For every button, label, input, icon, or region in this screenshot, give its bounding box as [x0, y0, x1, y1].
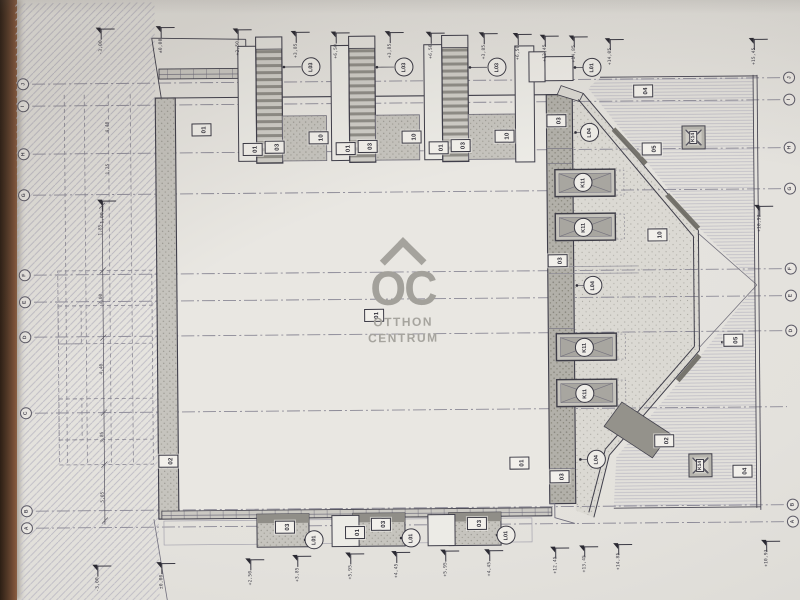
- elevation-value: +13,45: [582, 555, 587, 573]
- ref-circle-label: L01: [305, 530, 324, 549]
- grid-axis-bubble: J: [17, 78, 29, 90]
- grid-axis-bubble-text: H: [21, 152, 27, 156]
- flag-arm: [396, 552, 410, 553]
- ref-box-label-text: 05: [733, 336, 739, 343]
- grid-axis-bubble: H: [784, 142, 796, 154]
- ref-box-label: 10: [647, 228, 667, 241]
- ref-circle-label-text: L01: [311, 535, 317, 545]
- grid-axis-bubble-text: B: [24, 509, 30, 513]
- flag-pole: [445, 551, 446, 562]
- grid-axis-bubble: F: [19, 269, 31, 281]
- elevation-value: +2,50: [236, 41, 241, 56]
- elevation-value: +5,95: [443, 562, 448, 577]
- grid-axis-bubble-text: I: [786, 99, 792, 100]
- grid-axis-bubble: F: [785, 263, 797, 275]
- grid-axis-bubble-text: C: [23, 411, 29, 415]
- ref-circle-label-text: K11: [582, 388, 588, 398]
- grid-axis-bubble-text: D: [22, 335, 28, 339]
- grid-axis-bubble: I: [17, 100, 29, 112]
- photographed-blueprint: JIHGFEDCBAJIHGFEDBA010101010101010303030…: [0, 0, 800, 600]
- flag-pole: [296, 32, 297, 43]
- grid-axis-bubble-text: E: [788, 294, 794, 297]
- ref-circle-label-text: L01: [589, 63, 595, 73]
- grid-axis-bubble-text: G: [21, 193, 27, 197]
- flag-pole: [431, 33, 432, 44]
- elevation-value: +3,85: [482, 45, 487, 60]
- ref-box-label-text: 01: [439, 144, 445, 151]
- elevation-value: +3,85: [294, 43, 299, 58]
- grid-axis-bubble: G: [18, 189, 30, 201]
- ref-box-label: 03: [548, 254, 568, 267]
- ref-circle-label: L04: [580, 123, 599, 142]
- ref-circle-label-text: L03: [494, 62, 500, 72]
- dimension-text: 5,05: [101, 492, 106, 503]
- flag-pole: [518, 34, 519, 45]
- elevation-value: +12,45: [553, 556, 558, 574]
- flag-arm: [102, 200, 116, 201]
- flag-arm: [618, 544, 632, 545]
- ref-circle-label-text: L03: [401, 62, 407, 72]
- roof-plan-drawing: JIHGFEDCBAJIHGFEDBA010101010101010303030…: [0, 0, 800, 600]
- grid-axis-bubble: I: [783, 94, 795, 106]
- ref-circle-label-text: L04: [593, 455, 599, 465]
- ref-box-label: 05: [642, 142, 662, 155]
- ref-box-label: 03: [358, 140, 378, 153]
- dimension-text-text: 1,85: [98, 225, 103, 236]
- flag-arm: [610, 39, 624, 40]
- dimension-text-text: 3,00: [99, 294, 104, 305]
- dimension-text: 3,00: [99, 294, 104, 305]
- flag-arm: [431, 33, 445, 34]
- flag-pole: [484, 33, 485, 44]
- ref-circle-label: L03: [394, 57, 413, 76]
- elevation-value: -3,00: [95, 577, 100, 592]
- dimension-text: 4,40: [100, 364, 105, 375]
- ref-circle-label: L04: [583, 276, 602, 295]
- dimension-text-text: 4,40: [105, 122, 110, 133]
- grid-axis-bubble-text: J: [20, 83, 26, 86]
- flag-arm: [555, 548, 569, 549]
- flag-arm: [584, 546, 598, 547]
- dimension-text-text: 1,25: [106, 164, 111, 175]
- flag-arm: [759, 206, 773, 207]
- ref-box-label: 01: [243, 143, 263, 156]
- ref-box-label-text: 10: [412, 133, 418, 140]
- grid-axis-bubble: D: [785, 325, 797, 337]
- dimension-text-text: 4,40: [100, 364, 105, 375]
- ref-box-label: 03: [451, 139, 471, 152]
- elevation-value: -3,00: [99, 40, 104, 55]
- dimension-text-text: 5,05: [101, 492, 106, 503]
- grid-axis-bubble: A: [787, 516, 799, 528]
- elevation-value: +4,45: [394, 563, 399, 578]
- flag-pole: [102, 201, 103, 212]
- ref-box-label-text: 03: [556, 117, 562, 124]
- ref-box-label-text: 03: [275, 143, 281, 150]
- ref-box-label: 03: [275, 520, 295, 533]
- ref-box-label-text: 03: [477, 520, 483, 527]
- ref-box-label-text: 05: [652, 145, 658, 152]
- flag-arm: [238, 29, 252, 30]
- ref-box-label-text: 03: [285, 523, 291, 530]
- flag-pole: [396, 552, 397, 563]
- flag-pole: [336, 33, 337, 44]
- flag-arm: [754, 39, 768, 40]
- ref-box-label-text: 03: [560, 473, 566, 480]
- ref-box-label-text: 01: [355, 529, 361, 536]
- grid-axis-bubble-text: F: [22, 274, 28, 277]
- ref-circle-label: L03: [487, 58, 506, 77]
- dimension-text: 4,40: [105, 122, 110, 133]
- flag-arm: [518, 34, 532, 35]
- flag-arm: [297, 556, 311, 557]
- grid-axis-bubble: C: [20, 407, 32, 419]
- grid-axis-bubble-text: A: [24, 526, 30, 530]
- elevation-value: +5,95: [348, 565, 353, 580]
- grid-axis-bubble: B: [21, 505, 33, 517]
- ref-box-label: 03: [371, 517, 391, 530]
- roof-window-label-text: K14: [696, 459, 704, 472]
- flag-arm: [101, 28, 115, 29]
- flag-arm: [250, 559, 264, 560]
- ref-box-label: 03: [549, 470, 569, 483]
- flag-pole: [161, 27, 162, 38]
- grid-axis-bubble: H: [18, 148, 30, 160]
- ref-circle-label-text: L01: [503, 530, 509, 540]
- ref-box-label-text: 02: [168, 457, 174, 464]
- flag-arm: [390, 32, 404, 33]
- ref-box-label-text: 01: [346, 145, 352, 152]
- roof-window-label-text: K14: [690, 131, 698, 144]
- ref-box-label-text: 03: [381, 520, 387, 527]
- elevation-value: +4,45: [487, 562, 492, 577]
- elevation-value: +12,45: [543, 44, 548, 62]
- grid-axis-bubble-text: J: [786, 76, 792, 79]
- flag-arm: [489, 550, 503, 551]
- dimension-text: 3,85: [100, 432, 105, 443]
- ref-box-label: 01: [429, 141, 449, 154]
- flag-arm: [336, 32, 350, 33]
- elevation-value: +3,85: [388, 44, 393, 59]
- ref-box-label: 10: [309, 131, 329, 144]
- flag-arm: [97, 566, 111, 567]
- flag-arm: [296, 32, 310, 33]
- dimension-text: 1,85: [98, 225, 103, 236]
- elevation-value: +3,85: [295, 567, 300, 582]
- grid-axis-bubble: A: [21, 522, 33, 534]
- ref-box-label-text: 03: [368, 143, 374, 150]
- ref-box-label: 03: [467, 517, 487, 530]
- elevation-value: +14,85: [572, 45, 577, 63]
- roof-window-label: K14: [688, 453, 712, 477]
- ref-box-label-text: 10: [319, 134, 325, 141]
- elevation-value: +10,93: [764, 549, 769, 567]
- flag-pole: [390, 32, 391, 43]
- ref-box-label-text: 03: [558, 257, 564, 264]
- grid-axis-bubble: B: [787, 499, 799, 511]
- ref-circle-label: L01: [496, 526, 515, 545]
- ref-box-label-text: 04: [643, 87, 649, 94]
- grid-axis-bubble-text: D: [788, 329, 794, 333]
- ref-circle-label-text: L04: [590, 281, 596, 291]
- grid-axis-bubble-text: F: [788, 267, 794, 270]
- grid-axis-bubble-text: E: [22, 301, 28, 304]
- flag-arm: [445, 550, 459, 551]
- otthon-centrum-watermark: OC OTTHON CENTRUM: [363, 244, 444, 347]
- watermark-logo: OC: [363, 261, 443, 315]
- ref-box-label-text: 01: [253, 146, 259, 153]
- flag-pole: [297, 556, 298, 567]
- grid-axis-bubble: G: [784, 183, 796, 195]
- flag-pole: [350, 553, 351, 564]
- elevation-value: ±0,00: [159, 575, 164, 590]
- grid-axis-bubble: E: [785, 290, 797, 302]
- grid-axis-bubble-text: H: [787, 146, 793, 150]
- ref-circle-label-text: K11: [580, 222, 586, 232]
- ref-box-label: 10: [402, 130, 422, 143]
- ref-box-label: 05: [723, 333, 743, 346]
- ref-box-label-text: 04: [742, 467, 748, 474]
- flag-pole: [101, 29, 102, 40]
- ref-box-label: 04: [732, 464, 752, 477]
- ref-box-label: 02: [654, 434, 674, 447]
- flag-arm: [161, 27, 175, 28]
- ref-box-label: 01: [509, 456, 529, 469]
- ref-circle-label-text: K11: [581, 342, 587, 352]
- ref-circle-label: K11: [573, 173, 592, 192]
- flag-arm: [545, 36, 559, 37]
- ref-circle-label: L03: [301, 57, 320, 76]
- ref-circle-label: L04: [587, 450, 606, 469]
- flag-arm: [766, 541, 780, 542]
- watermark-line1: OTTHON: [363, 313, 443, 330]
- grid-axis-bubble-text: B: [790, 503, 796, 507]
- ref-box-label: 10: [495, 129, 515, 142]
- ref-circle-label: L01: [401, 528, 420, 547]
- ref-box-label: 01: [336, 142, 356, 155]
- elevation-value: +10,93: [757, 214, 762, 232]
- ref-circle-label: K11: [575, 384, 594, 403]
- ref-circle-label: K11: [574, 218, 593, 237]
- grid-axis-bubble-text: I: [20, 106, 26, 107]
- elevation-value: +15,45: [752, 47, 757, 65]
- grid-axis-bubble: D: [19, 331, 31, 343]
- flag-pole: [489, 550, 490, 561]
- ref-box-label-text: 02: [664, 437, 670, 444]
- grid-axis-bubble: J: [783, 72, 795, 84]
- ref-box-label: 01: [191, 123, 211, 136]
- ref-box-label: 03: [265, 140, 285, 153]
- ref-circle-label: K11: [575, 338, 594, 357]
- flag-arm: [161, 563, 175, 564]
- elevation-value: +6,50: [334, 44, 339, 59]
- elevation-value: +14,85: [616, 553, 621, 571]
- grid-axis-bubble-text: G: [787, 187, 793, 191]
- flag-arm: [350, 553, 364, 554]
- elevation-value: +14,05: [608, 48, 613, 66]
- dimension-text: 1,25: [106, 164, 111, 175]
- flag-pole: [250, 559, 251, 570]
- elevation-value: +6,50: [516, 45, 521, 60]
- ref-box-label-text: 10: [505, 132, 511, 139]
- ref-circle-label: L01: [582, 58, 601, 77]
- ref-circle-label-text: L01: [408, 533, 414, 543]
- ref-box-label: 02: [158, 454, 178, 467]
- flag-pole: [238, 29, 239, 40]
- dimension-text-text: 3,85: [100, 432, 105, 443]
- elevation-value: ±0,00: [159, 39, 164, 54]
- ref-circle-label-text: L04: [586, 128, 592, 138]
- ref-box-label: 03: [546, 114, 566, 127]
- watermark-line2: CENTRUM: [363, 329, 443, 346]
- ref-box-label-text: 01: [201, 126, 207, 133]
- flag-arm: [484, 33, 498, 34]
- flag-arm: [574, 36, 588, 37]
- ref-box-label: 01: [345, 526, 365, 539]
- flag-pole: [161, 563, 162, 574]
- flag-pole: [97, 566, 98, 577]
- roof-window-label: K14: [681, 125, 705, 149]
- ref-box-label-text: 10: [657, 231, 663, 238]
- elevation-value: +2,50: [248, 571, 253, 586]
- elevation-value: +6,50: [429, 44, 434, 59]
- ref-box-label-text: 03: [461, 142, 467, 149]
- grid-axis-bubble-text: A: [790, 520, 796, 524]
- ref-circle-label-text: L03: [308, 62, 314, 72]
- ref-box-label: 04: [633, 84, 653, 97]
- ref-box-label-text: 01: [519, 459, 525, 466]
- ref-circle-label-text: K11: [580, 177, 586, 187]
- grid-axis-bubble: E: [19, 296, 31, 308]
